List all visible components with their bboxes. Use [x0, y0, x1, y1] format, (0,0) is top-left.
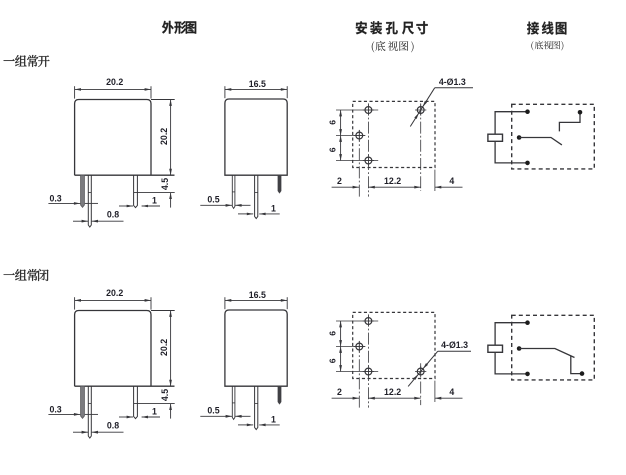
svg-text:20.2: 20.2 [106, 288, 123, 298]
svg-text:12.2: 12.2 [384, 387, 401, 397]
svg-text:0.5: 0.5 [207, 195, 219, 205]
svg-text:0.5: 0.5 [207, 406, 219, 416]
svg-text:20.2: 20.2 [159, 128, 169, 145]
svg-text:1: 1 [271, 204, 276, 214]
svg-text:1: 1 [152, 407, 157, 417]
svg-text:16.5: 16.5 [249, 79, 266, 89]
svg-text:12.2: 12.2 [384, 176, 401, 186]
svg-text:6: 6 [327, 331, 337, 336]
svg-text:1: 1 [271, 415, 276, 425]
svg-text:0.8: 0.8 [107, 420, 119, 430]
svg-text:4.5: 4.5 [160, 178, 170, 190]
svg-text:6: 6 [327, 120, 337, 125]
svg-text:6: 6 [327, 147, 337, 152]
svg-text:4: 4 [449, 387, 454, 397]
svg-text:4: 4 [449, 176, 454, 186]
svg-text:4-Ø1.3: 4-Ø1.3 [441, 340, 468, 350]
svg-text:0.3: 0.3 [49, 404, 61, 414]
svg-text:2: 2 [337, 387, 342, 397]
svg-text:0.8: 0.8 [107, 209, 119, 219]
svg-text:4-Ø1.3: 4-Ø1.3 [439, 77, 466, 87]
svg-text:1: 1 [152, 196, 157, 206]
svg-text:20.2: 20.2 [159, 339, 169, 356]
svg-text:6: 6 [327, 358, 337, 363]
svg-text:16.5: 16.5 [249, 290, 266, 300]
svg-text:0.3: 0.3 [49, 193, 61, 203]
svg-text:20.2: 20.2 [106, 77, 123, 87]
svg-text:4.5: 4.5 [160, 389, 170, 401]
svg-text:2: 2 [337, 176, 342, 186]
